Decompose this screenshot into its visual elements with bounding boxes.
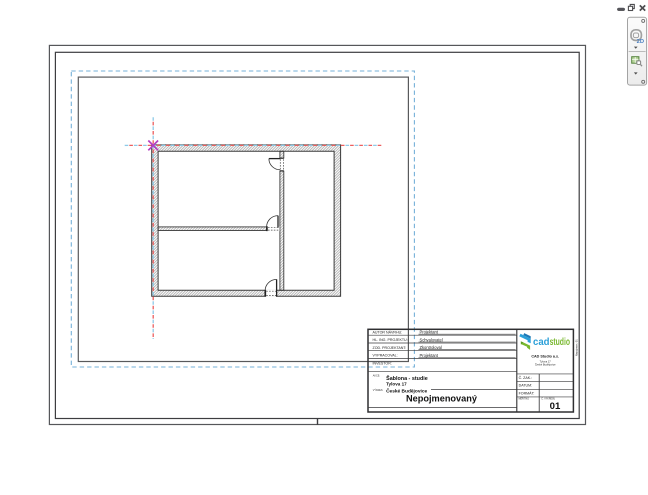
svg-text:AUTOR NÁVRHU:: AUTOR NÁVRHU:: [373, 330, 403, 334]
svg-text:Nepojmen. 01: Nepojmen. 01: [575, 339, 579, 356]
svg-text:DATUM:: DATUM:: [519, 384, 533, 388]
svg-text:FORMÁT:: FORMÁT:: [519, 391, 535, 395]
svg-text:VYPRACOVAL:: VYPRACOVAL:: [373, 354, 398, 358]
svg-text:Schvalovatel: Schvalovatel: [420, 337, 443, 342]
svg-text:Č. ZAK.:: Č. ZAK.:: [519, 375, 533, 380]
svg-text:cad: cad: [533, 337, 550, 348]
svg-text:studio: studio: [550, 337, 570, 348]
svg-text:Šablona - studie: Šablona - studie: [386, 374, 428, 382]
svg-text:Zkontroloval: Zkontroloval: [420, 345, 442, 350]
svg-text:Projektant: Projektant: [420, 353, 439, 358]
svg-text:CAD Studio a.s.: CAD Studio a.s.: [531, 354, 559, 358]
svg-text:Tylova 17: Tylova 17: [386, 382, 407, 387]
svg-text:MĚŘÍTKO: MĚŘÍTKO: [519, 398, 530, 401]
svg-text:AKCE:: AKCE:: [373, 374, 381, 377]
svg-text:INVESTOR:: INVESTOR:: [373, 361, 392, 365]
svg-text:Nepojmenovaný: Nepojmenovaný: [406, 393, 478, 403]
svg-text:VÝKRES:: VÝKRES:: [373, 389, 384, 392]
svg-text:2D: 2D: [637, 39, 644, 45]
svg-text:Projektant: Projektant: [420, 330, 439, 335]
svg-text:01: 01: [550, 401, 561, 412]
svg-text:ZOD. PROJEKTANT:: ZOD. PROJEKTANT:: [373, 346, 407, 350]
svg-text:Tylova 17: Tylova 17: [540, 359, 552, 363]
svg-text:HL. ING. PROJEKTU:: HL. ING. PROJEKTU:: [373, 338, 408, 342]
